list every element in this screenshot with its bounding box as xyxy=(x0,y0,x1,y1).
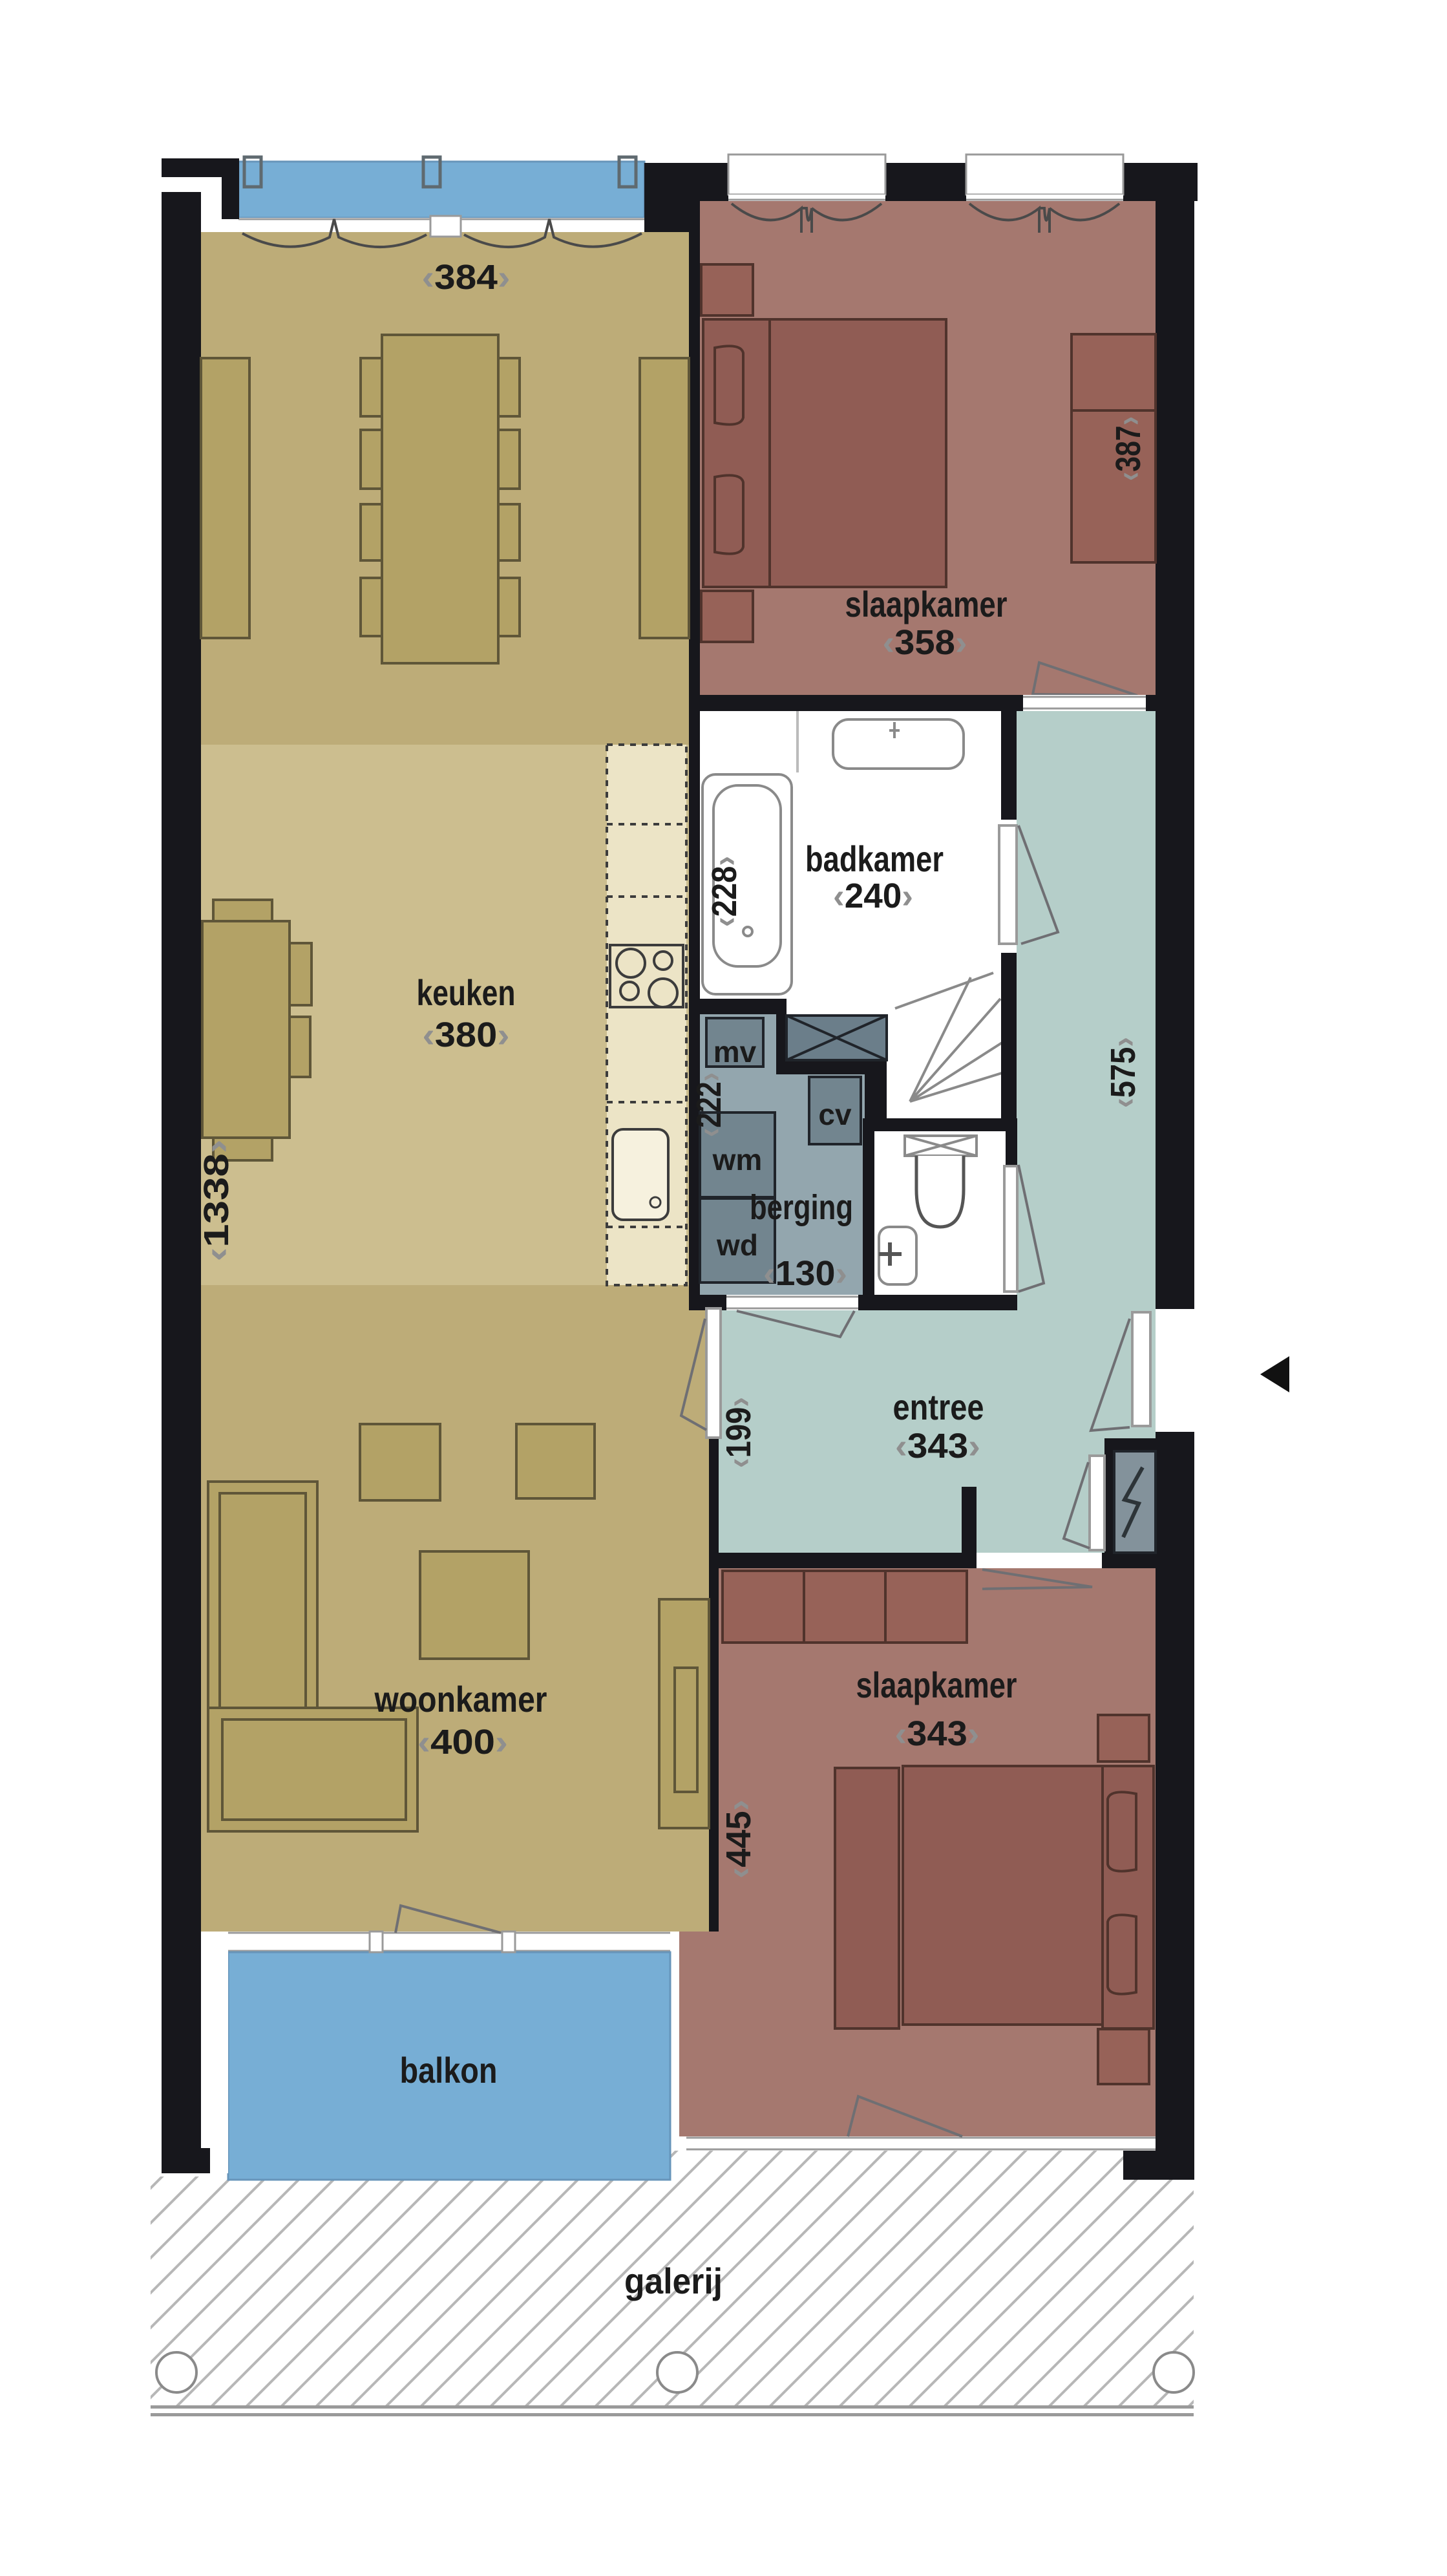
svg-text:‹130›: ‹130› xyxy=(763,1254,847,1293)
svg-text:wm: wm xyxy=(712,1143,763,1176)
svg-text:‹575›: ‹575› xyxy=(1104,1037,1143,1108)
svg-text:‹1338›: ‹1338› xyxy=(197,1140,236,1262)
svg-text:mv: mv xyxy=(713,1035,757,1069)
svg-text:‹384›: ‹384› xyxy=(422,258,511,297)
svg-text:slaapkamer: slaapkamer xyxy=(856,1665,1017,1705)
svg-text:keuken: keuken xyxy=(417,972,516,1013)
svg-text:wd: wd xyxy=(716,1228,758,1262)
svg-text:‹240›: ‹240› xyxy=(833,877,913,915)
svg-text:cv: cv xyxy=(818,1098,852,1131)
svg-text:‹228›: ‹228› xyxy=(705,856,744,927)
svg-text:‹387›: ‹387› xyxy=(1109,416,1148,481)
svg-text:‹199›: ‹199› xyxy=(719,1397,758,1468)
svg-text:slaapkamer: slaapkamer xyxy=(845,584,1008,624)
svg-text:galerij: galerij xyxy=(624,2261,723,2301)
svg-text:woonkamer: woonkamer xyxy=(374,1679,547,1719)
svg-text:‹400›: ‹400› xyxy=(417,1723,508,1762)
svg-text:‹380›: ‹380› xyxy=(423,1016,510,1054)
svg-text:‹343›: ‹343› xyxy=(895,1714,980,1753)
svg-text:‹222›: ‹222› xyxy=(690,1072,728,1137)
svg-text:‹343›: ‹343› xyxy=(895,1427,980,1465)
svg-text:‹358›: ‹358› xyxy=(883,623,967,662)
svg-text:entree: entree xyxy=(893,1387,984,1427)
svg-text:balkon: balkon xyxy=(400,2050,498,2091)
svg-text:berging: berging xyxy=(750,1188,853,1227)
svg-text:badkamer: badkamer xyxy=(805,838,944,879)
svg-text:‹445›: ‹445› xyxy=(719,1800,758,1879)
